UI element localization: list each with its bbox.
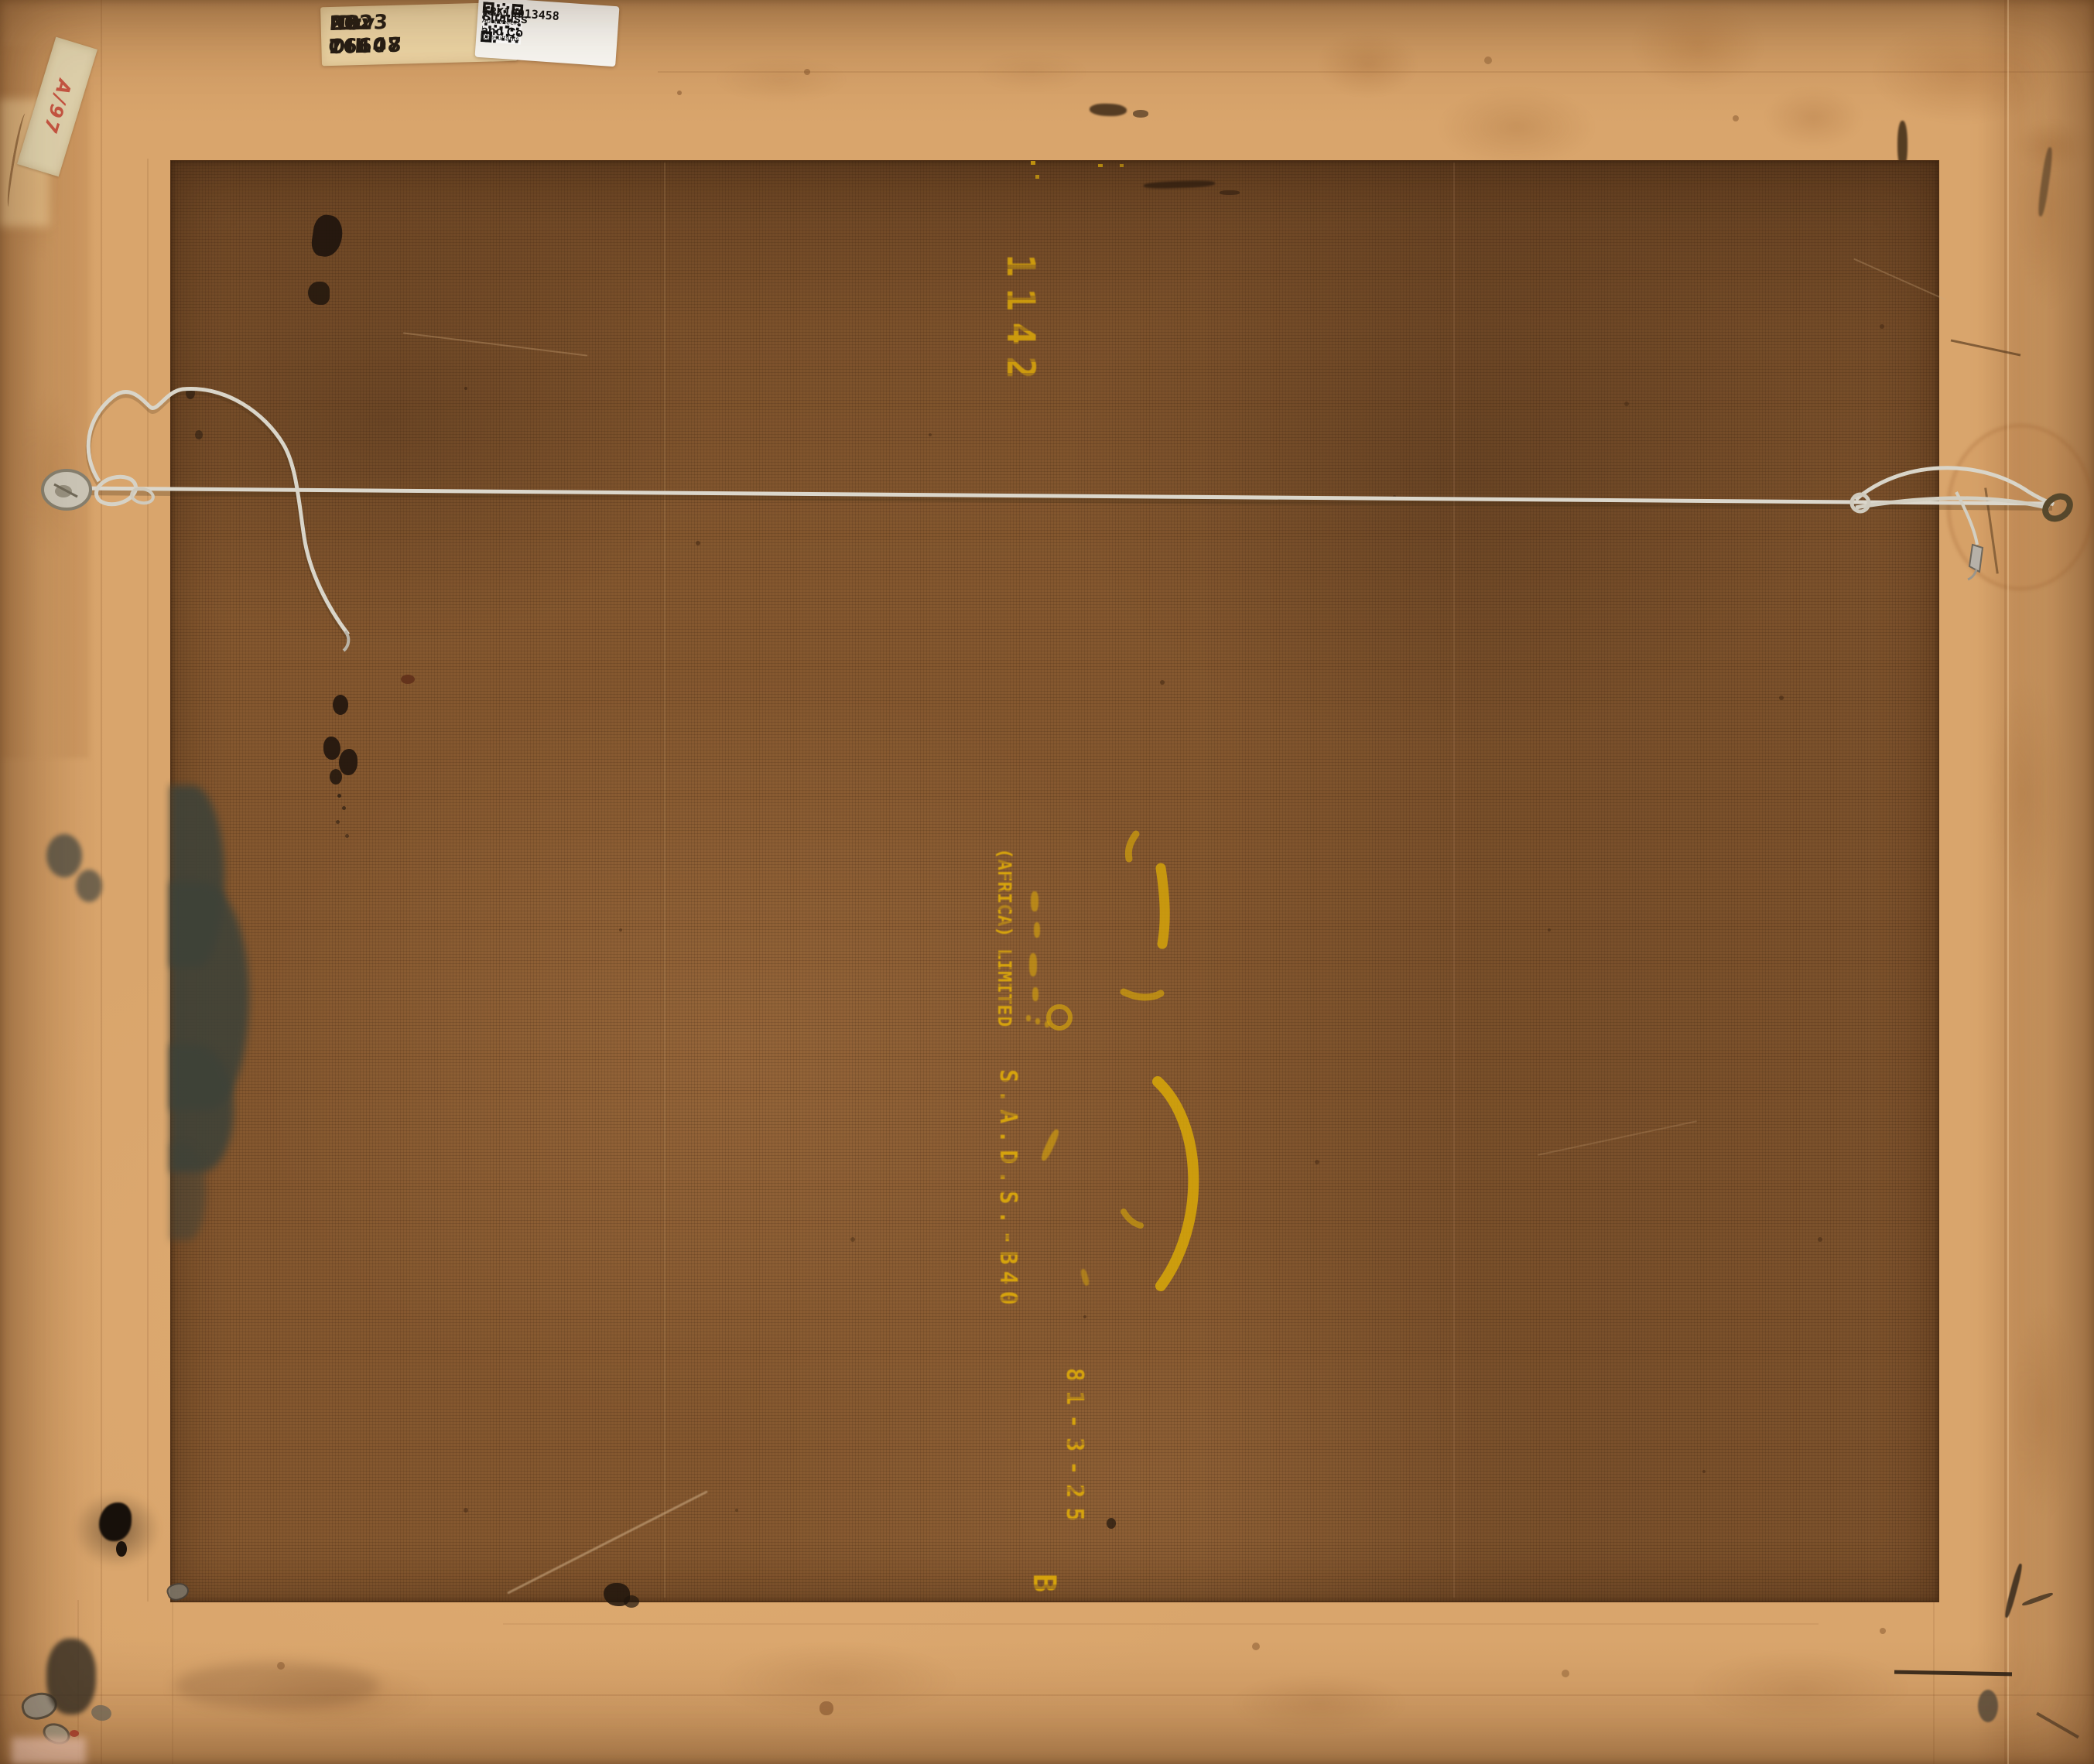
year-note: 2023 <box>329 11 389 36</box>
tape-note-text: A/97 <box>39 77 76 137</box>
wire-tail-tip <box>1968 569 1976 579</box>
wire-left-loop <box>88 389 348 634</box>
tracking-label: TRK10013458 Strauss and Co Fine Art Auct… <box>475 0 620 67</box>
cord-shadow <box>88 392 348 638</box>
hanging-wire <box>0 0 2094 1764</box>
screw-eye-right <box>2041 492 2075 524</box>
painting-back-photo: 1142 (AFRICA) LIMITED S.A.D.S.-B40 81-3-… <box>0 0 2094 1764</box>
auction-house-tagline: Fine Art Auctioneers | Consultants <box>481 9 521 43</box>
wire-ferrule <box>1969 545 1983 572</box>
